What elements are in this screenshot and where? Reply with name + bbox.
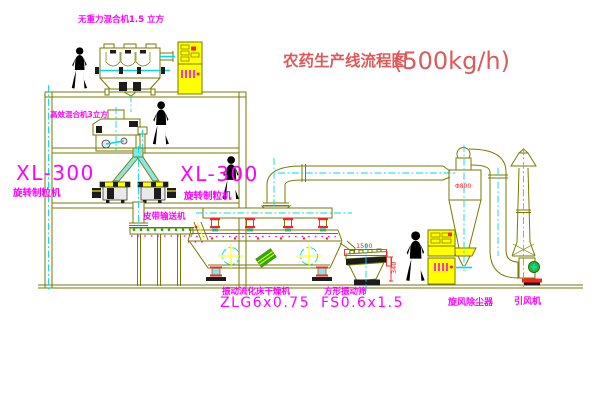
label-granulator-right-name: 旋转制粒机 [183,190,232,202]
dim-cyclone-diameter: Φ800 [455,183,471,190]
label-high-eff-mixer: 高效混合机3立方 [50,109,108,119]
worker-ground [406,231,425,281]
label-granulator-left-name: 旋转制粒机 [12,187,61,199]
dryer-crosshair-right [296,244,322,268]
label-granulator-left-model: XL-300 [16,161,95,185]
induced-draft-fan-machine [511,148,542,287]
control-cabinet-right [428,230,455,284]
granulator-right-machine [138,182,176,203]
worker-floor2 [153,101,169,144]
title-cn: 农药生产线流程图 [282,51,407,70]
label-belt-conveyor: 皮带输送机 [142,211,186,222]
belt-conveyor-machine [129,228,194,287]
dryer-feet [206,267,332,282]
label-sieve-model: FS0.6x1.5 [321,295,404,311]
label-fan: 引风机 [514,295,541,307]
label-granulator-right-model: XL-300 [180,162,259,186]
label-dryer-model: ZLG6x0.75 [220,295,310,311]
gravity-mixer [95,44,175,96]
dryer-bed-bolts [211,237,328,239]
flow-diagram: 农药生产线流程图 (500kg/h) 无重力混合机1.5 立方 高效混合机3立方… [0,0,600,403]
worker-roof [72,47,87,88]
control-cabinet-top [178,42,202,94]
dim-sieve-length: 1500 [356,242,373,250]
dryer-bellows [210,218,328,232]
granulator-left-machine [92,182,130,203]
dryer-crosshair-left [218,244,244,268]
dim-sieve-height: 340 [390,262,398,274]
label-gravity-mixer: 无重力混合机1.5 立方 [77,14,165,25]
conveyor-rollers [133,229,192,232]
title-capacity: (500kg/h) [393,47,510,75]
label-cyclone: 旋风除尘器 [447,296,494,308]
fluid-bed-dryer-machine [188,208,355,281]
dryer-vibration-motor [256,249,276,268]
diagram-canvas: 农药生产线流程图 (500kg/h) 无重力混合机1.5 立方 高效混合机3立方… [0,0,600,403]
